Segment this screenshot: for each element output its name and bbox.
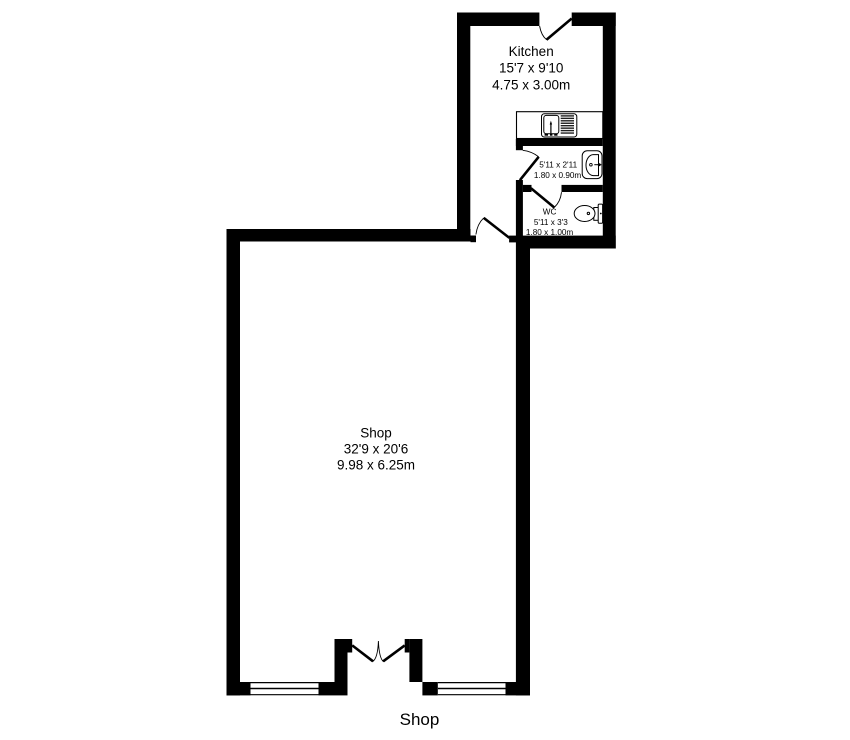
svg-text:WC: WC xyxy=(543,207,557,216)
svg-text:1.80 x 0.90m: 1.80 x 0.90m xyxy=(534,171,582,180)
svg-text:1.80 x 1.00m: 1.80 x 1.00m xyxy=(526,228,574,237)
svg-text:Kitchen: Kitchen xyxy=(509,44,554,59)
svg-text:5'11 x 2'11: 5'11 x 2'11 xyxy=(539,161,577,170)
svg-text:15'7 x 9'10: 15'7 x 9'10 xyxy=(499,61,563,76)
svg-text:Shop: Shop xyxy=(400,710,440,729)
svg-text:Shop: Shop xyxy=(360,425,392,440)
svg-text:9.98 x 6.25m: 9.98 x 6.25m xyxy=(337,458,415,473)
svg-text:32'9 x 20'6: 32'9 x 20'6 xyxy=(344,442,408,457)
svg-text:5'11 x 3'3: 5'11 x 3'3 xyxy=(534,218,568,227)
svg-text:4.75 x 3.00m: 4.75 x 3.00m xyxy=(492,78,570,93)
